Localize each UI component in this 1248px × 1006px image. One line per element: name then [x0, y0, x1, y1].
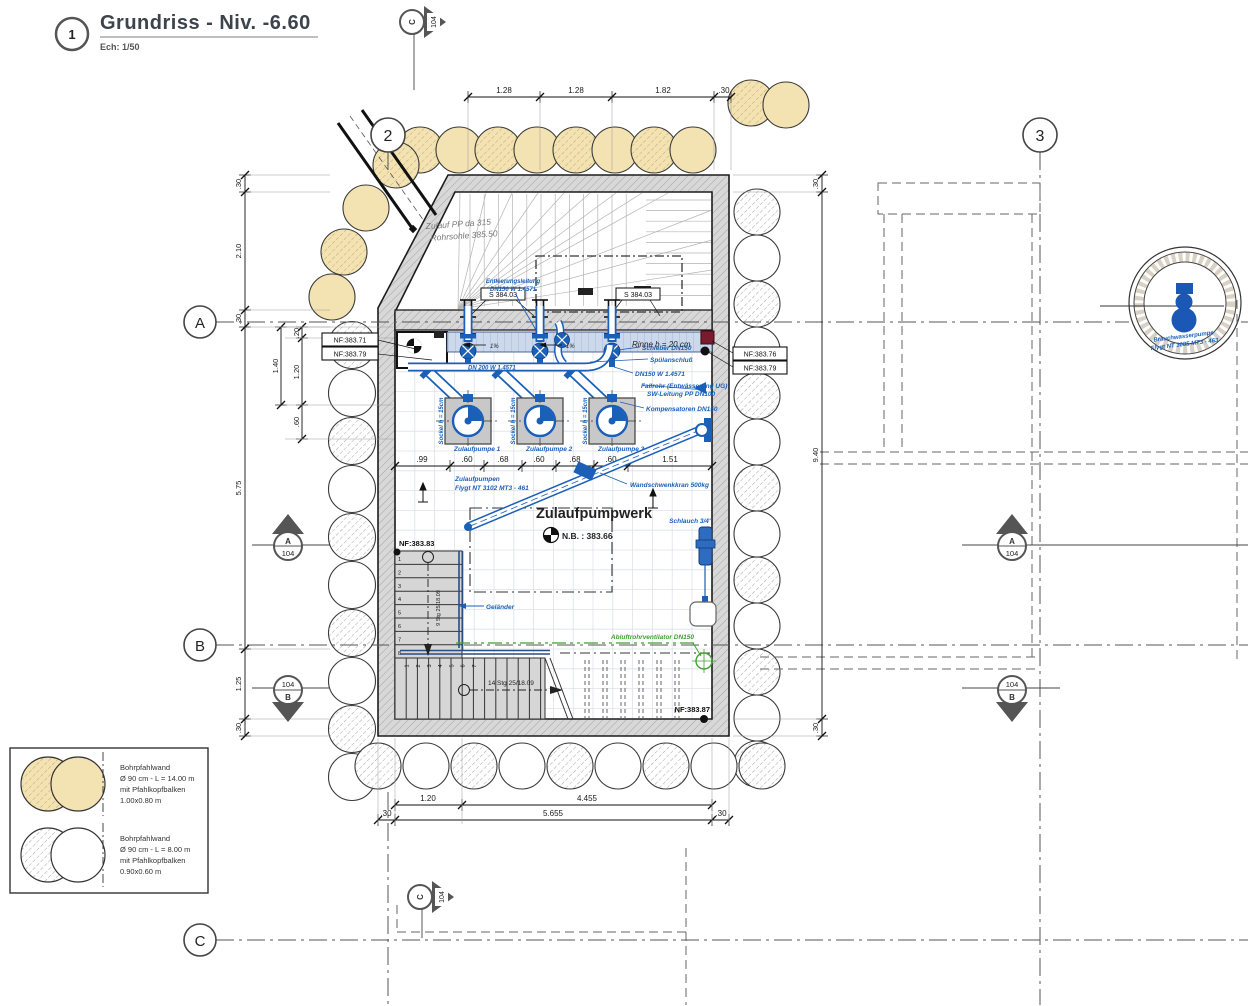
dim-left-1: .30 [234, 179, 243, 189]
legend-item1-line2: Ø 90 cm - L = 14.00 m [120, 774, 195, 783]
stair-number: 2 [416, 664, 422, 667]
dim-left-3: .30 [234, 314, 243, 324]
detail-pump-body [1172, 308, 1197, 333]
dim-pump-1: .99 [416, 455, 428, 464]
dim-left-5: 1.25 [234, 677, 243, 692]
vent-label: Abluftrohrventilator DN150 [610, 634, 694, 641]
hose-label: Schlauch 3/4" [669, 518, 713, 525]
grid-col-3: 3 [1036, 128, 1045, 145]
room-title: Zulaufpumpwerk [536, 506, 653, 522]
dim-left-in-3: .60 [292, 417, 301, 427]
bored-pile [670, 127, 716, 173]
bored-pile [343, 185, 389, 231]
section-marker-right-b: 104 B [962, 676, 1060, 722]
beam-symbol-1 [578, 288, 593, 295]
section-left-b-letter: B [285, 693, 291, 702]
drawing-scale: Ech: 1/50 [100, 42, 140, 52]
dim-right-3: .30 [811, 723, 820, 733]
dim-bot2-3: .30 [715, 809, 727, 818]
sump-detail: Brauchwasserpumpe Flygt NT 3085 MT3 - 46… [1100, 247, 1241, 359]
legend-item1-line1: Bohrpfahlwand [120, 763, 170, 772]
pumpen-label-2: Flygt NT 3102 MT3 - 461 [455, 485, 529, 492]
bored-pile [734, 465, 780, 511]
bored-pile [329, 610, 376, 657]
bored-pile [734, 189, 780, 235]
section-top-c-sheet: 104 [431, 16, 438, 28]
s-level-left: S 384.03 [489, 292, 517, 299]
section-top-c-letter: C [408, 19, 417, 25]
crane-label: Wandschwenkkran 500kg [630, 482, 709, 489]
dim-bot2-1: .30 [380, 809, 392, 818]
bored-pile [451, 743, 497, 789]
bored-pile [734, 649, 780, 695]
bored-pile [329, 466, 376, 513]
sockel-label: Sockel h = 15cm [511, 397, 517, 445]
stair-number: 5 [449, 664, 455, 667]
section-left-a-letter: A [285, 537, 291, 546]
entleerung-label-2: DN150 W 1.4571 [490, 287, 537, 293]
nf-left-1: NF:383.71 [334, 338, 367, 345]
stair-number: 3 [427, 664, 433, 667]
section-marker-left-b: 104 B [252, 676, 330, 722]
bored-pile [643, 743, 689, 789]
bored-pile [734, 511, 780, 557]
dim-left-6: .30 [234, 723, 243, 733]
dim-pump-4: .60 [533, 455, 545, 464]
drawing-title: Grundriss - Niv. -6.60 [100, 12, 311, 34]
dim-pump-2: .60 [461, 455, 473, 464]
dim-bot2-2: 5.655 [543, 809, 564, 818]
nb-basin: N.B. : 383.66 [562, 531, 613, 541]
legend-item1-line4: 1.00x0.80 m [120, 796, 161, 805]
dim-right-2: 9.40 [811, 448, 820, 463]
dim-left-in-2: 1.20 [292, 365, 301, 380]
stair-number: 6 [398, 624, 401, 630]
legend-item2-line1: Bohrpfahlwand [120, 834, 170, 843]
section-left-a-sheet: 104 [282, 549, 295, 558]
pipe-flange [604, 334, 620, 339]
nf-right-1: NF:383.76 [744, 352, 777, 359]
bored-pile [734, 235, 780, 281]
dim-top-2: 1.28 [568, 86, 584, 95]
bored-pile [309, 274, 355, 320]
bored-pile [329, 514, 376, 561]
section-right-b-sheet: 104 [1006, 680, 1019, 689]
dim-left-in-4: 1.40 [271, 359, 280, 374]
spuelanschluss-label: Spülanschluß [650, 357, 693, 364]
pump-shaft [609, 418, 616, 425]
stair-number: 3 [398, 584, 401, 590]
bored-pile [321, 229, 367, 275]
kompensatoren-label: Kompensatoren DN150 [646, 406, 718, 413]
bored-pile [329, 562, 376, 609]
section-marker-right-a: A 104 [962, 514, 1248, 560]
title-block: 1 Grundriss - Niv. -6.60 Ech: 1/50 [56, 12, 318, 52]
section-marker-left-a: A 104 [252, 514, 330, 560]
dn150-label: DN150 W 1.4571 [635, 371, 685, 378]
dim-top-1: 1.28 [496, 86, 512, 95]
legend-item2-line3: mit Pfahlkopfbalken [120, 856, 185, 865]
bored-pile [734, 603, 780, 649]
pipe-flange [532, 334, 548, 339]
bored-pile [329, 418, 376, 465]
pump-label: Zulaufpumpe 2 [525, 446, 573, 453]
stair-number: 1 [405, 664, 411, 667]
legend-item2-line2: Ø 90 cm - L = 8.00 m [120, 845, 190, 854]
pump-shaft [537, 418, 544, 425]
section-right-b-letter: B [1009, 693, 1015, 702]
bored-pile [329, 370, 376, 417]
dim-top-4: .30 [718, 86, 730, 95]
stair-number: 2 [398, 570, 401, 576]
section-marker-top-c: C 104 [400, 6, 446, 90]
stair-number: 4 [398, 597, 401, 603]
legend-pile-yellow-plain [51, 757, 105, 811]
legend-item1-line3: mit Pfahlkopfbalken [120, 785, 185, 794]
section-marker-bottom-c: C 104 [408, 881, 454, 938]
pump-head [535, 394, 545, 402]
stairs-upper-label: 9 Stg 25/18.09 [436, 590, 442, 626]
dim-top-3: 1.82 [655, 86, 671, 95]
sockel-label: Sockel h = 15cm [439, 397, 445, 445]
section-right-a-letter: A [1009, 537, 1015, 546]
grid-row-c: C [195, 933, 206, 950]
bored-pile [329, 658, 376, 705]
legend-pile-white-plain [51, 828, 105, 882]
pump-head [607, 394, 617, 402]
stair-number: 1 [398, 557, 401, 563]
stair-number: 7 [472, 664, 478, 667]
dim-left-2: 2.10 [234, 244, 243, 259]
gelaender-label: Geländer [486, 604, 515, 611]
s-level-right: S 384.03 [624, 292, 652, 299]
dim-left-4: 5.75 [234, 481, 243, 496]
entleerung-label-1: Entleerungsleitung [486, 279, 541, 285]
bored-pile [547, 743, 593, 789]
dim-bot1-1: 1.20 [420, 794, 436, 803]
rinne-label: Rinne b = 20 cm [632, 340, 691, 349]
nf-left-2: NF:383.79 [334, 352, 367, 359]
nf-right-2: NF:383.79 [744, 366, 777, 373]
bored-pile [691, 743, 737, 789]
floor-plan-drawing: Brauchwasserpumpe Flygt NT 3085 MT3 - 46… [0, 0, 1248, 1006]
pump-head [463, 394, 473, 402]
fallrohr-label-1: Fallrohr (Entwässerung UG) [641, 383, 727, 390]
bored-pile [734, 419, 780, 465]
bored-pile [734, 695, 780, 741]
pumpen-label-1: Zulaufpumpen [454, 476, 500, 483]
legend-item2-line4: 0.90x0.60 m [120, 867, 161, 876]
wall-anchor [434, 331, 444, 338]
stair-number: 7 [398, 637, 401, 643]
bored-pile [595, 743, 641, 789]
grid-row-b: B [195, 638, 205, 655]
sockel-label: Sockel h = 15cm [583, 397, 589, 445]
middle-wall [395, 310, 712, 330]
stairs-lower-label: 14 Stg 25/18.09 [488, 680, 534, 687]
pipe-flange [460, 334, 476, 339]
section-bottom-c-sheet: 104 [439, 891, 446, 903]
stair-number: 5 [398, 611, 401, 617]
floor-plan-sheet: Brauchwasserpumpe Flygt NT 3085 MT3 - 46… [0, 0, 1248, 1006]
drawing-index: 1 [68, 27, 75, 42]
stair-number: 6 [461, 664, 467, 667]
stair-number: 4 [438, 664, 444, 667]
nf-stairs: NF:383.83 [399, 539, 434, 548]
dim-pump-3: .68 [497, 455, 509, 464]
pump-shaft [465, 418, 472, 425]
grid-col-2: 2 [384, 128, 393, 145]
bored-pile [734, 373, 780, 419]
detail-pump-head [1176, 283, 1193, 294]
fallrohr-label-2: SW-Leitung PP DN100 [647, 391, 716, 398]
nf-floor: NF:383.87 [675, 705, 710, 714]
bored-pile [499, 743, 545, 789]
slope-label-2: 1% [566, 344, 575, 350]
section-bottom-c-letter: C [416, 894, 425, 900]
dim-left-in-1: .20 [292, 328, 301, 338]
grid-row-a: A [195, 315, 205, 332]
red-marker [701, 331, 714, 344]
bored-pile [739, 743, 785, 789]
dim-pump-7: 1.51 [662, 455, 678, 464]
bored-pile [763, 82, 809, 128]
pump-label: Zulaufpumpe 1 [453, 446, 501, 453]
dim-right-1: .30 [811, 179, 820, 189]
bored-pile [734, 557, 780, 603]
dim-bot1-2: 4.455 [577, 794, 598, 803]
section-right-a-sheet: 104 [1006, 549, 1019, 558]
bored-pile [403, 743, 449, 789]
pile-point-right [701, 347, 710, 356]
slope-label-1: 1% [490, 344, 499, 350]
legend: Bohrpfahlwand Ø 90 cm - L = 14.00 m mit … [10, 748, 208, 893]
dn200-label: DN 200 W 1.4571 [468, 366, 516, 372]
section-left-b-sheet: 104 [282, 680, 295, 689]
bored-pile [734, 281, 780, 327]
